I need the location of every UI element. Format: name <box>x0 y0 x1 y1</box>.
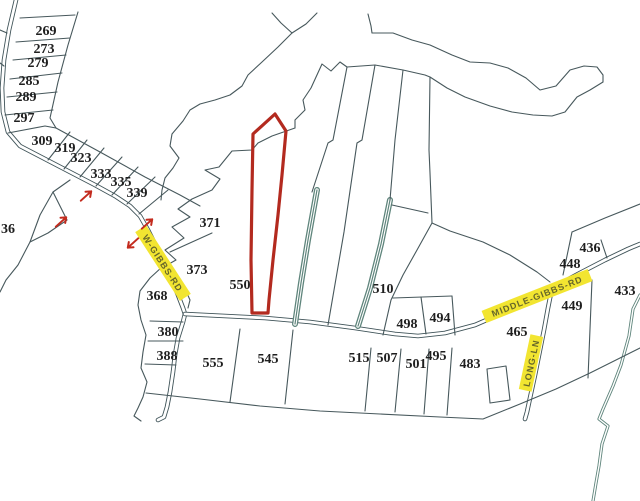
parcel-label-368: 368 <box>147 289 168 304</box>
parcel-label-297: 297 <box>14 111 35 126</box>
parcel-label-545: 545 <box>258 352 279 367</box>
parcel-label-371: 371 <box>200 216 221 231</box>
parcel-label-388: 388 <box>157 349 178 364</box>
parcel-label-380: 380 <box>158 325 179 340</box>
parcel-label-465: 465 <box>507 325 528 340</box>
parcel-label-433: 433 <box>615 284 636 299</box>
parcel-label-515: 515 <box>349 351 370 366</box>
parcel-label-269: 269 <box>36 24 57 39</box>
parcel-label-510: 510 <box>373 282 394 297</box>
parcel-label-309: 309 <box>32 134 53 149</box>
parcel-label-494: 494 <box>430 311 451 326</box>
parcel-label-448: 448 <box>560 257 581 272</box>
parcel-label-289: 289 <box>16 90 37 105</box>
map-canvas: W-GIBBS-RDMIDDLE-GIBBS-RDLONG-LN26927327… <box>0 0 640 501</box>
parcel-label-483: 483 <box>460 357 481 372</box>
parcel-label-449: 449 <box>562 299 583 314</box>
parcel-label-507: 507 <box>377 351 398 366</box>
parcel-label-498: 498 <box>397 317 418 332</box>
parcel-label-285: 285 <box>19 74 40 89</box>
map-background <box>0 0 640 501</box>
parcel-label-36: 36 <box>1 222 15 237</box>
parcel-label-501: 501 <box>406 357 427 372</box>
parcel-label-495: 495 <box>426 349 447 364</box>
parcel-map: W-GIBBS-RDMIDDLE-GIBBS-RDLONG-LN26927327… <box>0 0 640 501</box>
parcel-label-550: 550 <box>230 278 251 293</box>
parcel-label-373: 373 <box>187 263 208 278</box>
parcel-label-323: 323 <box>71 151 92 166</box>
parcel-label-279: 279 <box>28 56 49 71</box>
parcel-label-273: 273 <box>34 42 55 57</box>
parcel-label-339: 339 <box>127 186 148 201</box>
parcel-label-333: 333 <box>91 167 112 182</box>
parcel-label-555: 555 <box>203 356 224 371</box>
parcel-label-436: 436 <box>580 241 601 256</box>
